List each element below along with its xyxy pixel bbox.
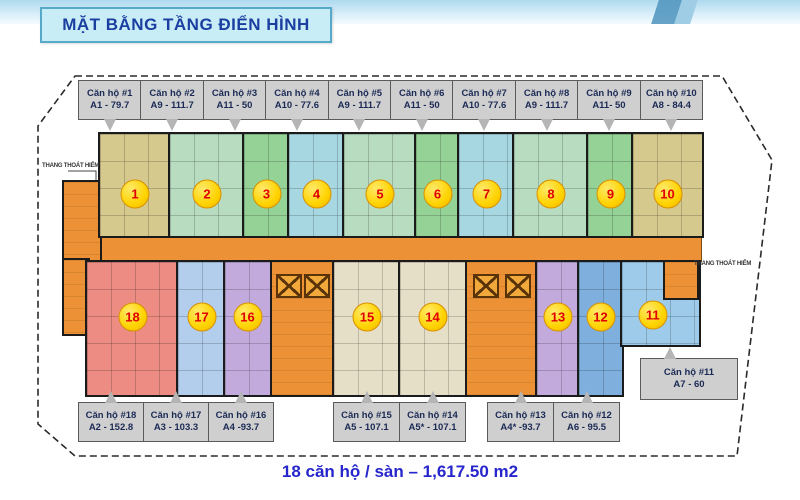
callout-tail-icon	[229, 119, 241, 131]
unit-9: 9	[586, 132, 635, 238]
callout-tail-icon	[166, 119, 178, 131]
unit-callout-14: Căn hộ #14A5* - 107.1	[399, 402, 466, 442]
unit-2: 2	[168, 132, 246, 238]
unit-callout-15: Căn hộ #15A5 - 107.1	[333, 402, 400, 442]
unit-10: 10	[631, 132, 704, 238]
unit-callout-5: Căn hộ #5A9 - 111.7	[328, 80, 391, 120]
unit-number-badge: 7	[472, 180, 501, 209]
unit-number-badge: 14	[418, 303, 447, 332]
unit-6: 6	[414, 132, 461, 238]
callout-tail-icon	[541, 119, 553, 131]
unit-callout-9: Căn hộ #9A11- 50	[577, 80, 640, 120]
callout-tail-icon	[478, 119, 490, 131]
unit-8: 8	[512, 132, 590, 238]
unit-17: 17	[176, 260, 227, 397]
unit-number-badge: 9	[596, 180, 625, 209]
unit-number-badge: 17	[187, 303, 216, 332]
callout-tail-icon	[416, 119, 428, 131]
unit-number-badge: 18	[118, 303, 147, 332]
callout-tail-icon	[104, 119, 116, 131]
unit-callout-8: Căn hộ #8A9 - 111.7	[515, 80, 578, 120]
unit-number-badge: 15	[353, 303, 382, 332]
unit-number-badge: 1	[121, 180, 150, 209]
callout-tail-icon	[427, 391, 439, 403]
unit-callout-2: Căn hộ #2A9 - 111.7	[140, 80, 203, 120]
top-callout-strip: Căn hộ #1A1 - 79.7 Căn hộ #2A9 - 111.7 C…	[78, 80, 702, 120]
unit-number-badge: 8	[537, 180, 566, 209]
bottom-callout-group-right: Căn hộ #13A4* -93.7 Căn hộ #12A6 - 95.5	[487, 402, 619, 442]
unit-callout-16: Căn hộ #16A4 -93.7	[208, 402, 274, 442]
callout-tail-icon	[515, 391, 527, 403]
unit-callout-13: Căn hộ #13A4* -93.7	[487, 402, 554, 442]
unit-number-badge: 2	[193, 180, 222, 209]
unit-number-badge: 6	[423, 180, 452, 209]
stair-core-left	[62, 180, 102, 262]
callout-tail-icon	[665, 119, 677, 131]
unit-1: 1	[98, 132, 172, 238]
unit-callout-18: Căn hộ #18A2 - 152.8	[78, 402, 144, 442]
callout-tail-icon	[105, 391, 117, 403]
bottom-callout-group-mid: Căn hộ #15A5 - 107.1 Căn hộ #14A5* - 107…	[333, 402, 465, 442]
unit-callout-1: Căn hộ #1A1 - 79.7	[78, 80, 141, 120]
elevator-shaft-icon	[304, 274, 330, 298]
slide: MẶT BẰNG TẦNG ĐIỂN HÌNH 1 2 3 4 5	[0, 0, 800, 500]
callout-tail-icon	[361, 391, 373, 403]
unit-callout-7: Căn hộ #7A10 - 77.6	[452, 80, 515, 120]
fire-escape-label-right: THANG THOÁT HIỂM	[694, 261, 751, 267]
unit-number-badge: 3	[252, 180, 281, 209]
unit-13: 13	[535, 260, 581, 397]
callout-tail-icon	[664, 347, 676, 359]
fire-escape-label-left: THANG THOÁT HIỂM	[42, 163, 99, 169]
unit-4: 4	[287, 132, 346, 238]
elevator-core-left	[268, 260, 336, 397]
unit-callout-10: Căn hộ #10A8 - 84.4	[640, 80, 703, 120]
unit-12: 12	[577, 260, 624, 397]
unit-number-badge: 10	[653, 180, 682, 209]
unit-callout-17: Căn hộ #17A3 - 103.3	[143, 402, 209, 442]
unit-callout-3: Căn hộ #3A11 - 50	[203, 80, 266, 120]
callout-tail-icon	[170, 391, 182, 403]
elevator-shaft-icon	[276, 274, 302, 298]
callout-tail-icon	[353, 119, 365, 131]
unit-number-badge: 11	[638, 301, 667, 330]
callout-tail-icon	[603, 119, 615, 131]
elevator-shaft-icon	[473, 274, 499, 298]
unit-number-badge: 4	[302, 180, 331, 209]
unit-7: 7	[457, 132, 516, 238]
unit-number-badge: 16	[233, 303, 262, 332]
unit-callout-11: Căn hộ #11A7 - 60	[640, 358, 738, 400]
callout-tail-icon	[235, 391, 247, 403]
elevator-core-right	[463, 260, 539, 397]
unit-15: 15	[332, 260, 402, 397]
elevator-shaft-icon	[505, 274, 531, 298]
corridor	[62, 234, 702, 262]
unit-callout-6: Căn hộ #6A11 - 50	[390, 80, 453, 120]
callout-tail-icon	[581, 391, 593, 403]
unit-number-badge: 5	[366, 180, 395, 209]
unit-callout-4: Căn hộ #4A10 - 77.6	[265, 80, 328, 120]
bottom-callout-group-left: Căn hộ #18A2 - 152.8 Căn hộ #17A3 - 103.…	[78, 402, 273, 442]
unit-number-badge: 13	[544, 303, 573, 332]
unit-number-badge: 12	[586, 303, 615, 332]
unit-18: 18	[85, 260, 180, 397]
unit-3: 3	[242, 132, 291, 238]
callout-unit-11: Căn hộ #11A7 - 60	[640, 358, 737, 400]
unit-callout-12: Căn hộ #12A6 - 95.5	[553, 402, 620, 442]
unit-16: 16	[223, 260, 272, 397]
unit-5: 5	[342, 132, 418, 238]
unit-14: 14	[398, 260, 467, 397]
callout-tail-icon	[291, 119, 303, 131]
